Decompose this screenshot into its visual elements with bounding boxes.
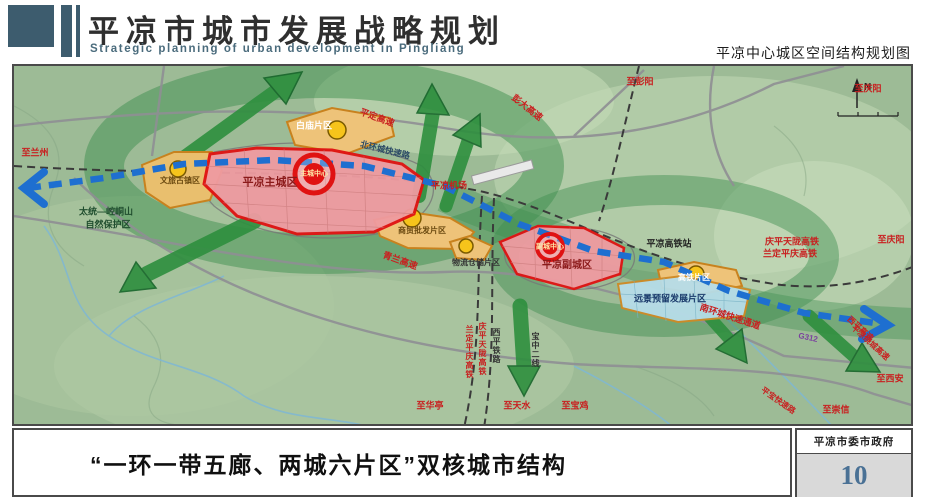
sub-city-center-icon: [537, 234, 563, 260]
planning-map: N 至兰州平定高速彭大高速至彭阳至庆阳北环城快速路平凉机场白庙片区平凉主城区主城…: [12, 64, 913, 426]
footer-page-box: 平凉市委市政府 10: [795, 428, 913, 497]
page: 平凉市城市发展战略规划 Strategic planning of urban …: [0, 0, 925, 500]
page-number: 10: [797, 454, 911, 497]
main-city-center-icon: [295, 155, 333, 193]
node-baimiao: [328, 121, 346, 139]
structure-slogan: “一环一带五廊、两城六片区”双核城市结构: [14, 446, 567, 480]
footer-slogan-box: “一环一带五廊、两城六片区”双核城市结构: [12, 428, 792, 497]
map-canvas: N: [14, 66, 913, 426]
authority-label: 平凉市委市政府: [797, 430, 911, 454]
map-caption: 平凉中心城区空间结构规划图: [716, 43, 911, 63]
header: 平凉市城市发展战略规划 Strategic planning of urban …: [0, 0, 925, 62]
header-accent-bar: [61, 5, 72, 57]
header-accent-square: [8, 5, 54, 47]
compass-n: N: [864, 82, 871, 93]
page-subtitle: Strategic planning of urban development …: [90, 43, 465, 55]
node-logistics: [459, 239, 473, 253]
header-accent-bar-thin: [76, 5, 80, 57]
